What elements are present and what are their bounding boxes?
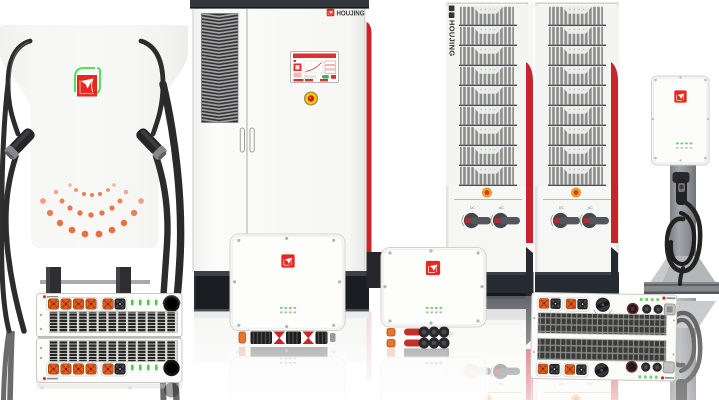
- svg-text:HOUJING: HOUJING: [448, 20, 457, 56]
- svg-text:HOUJING: HOUJING: [337, 10, 365, 17]
